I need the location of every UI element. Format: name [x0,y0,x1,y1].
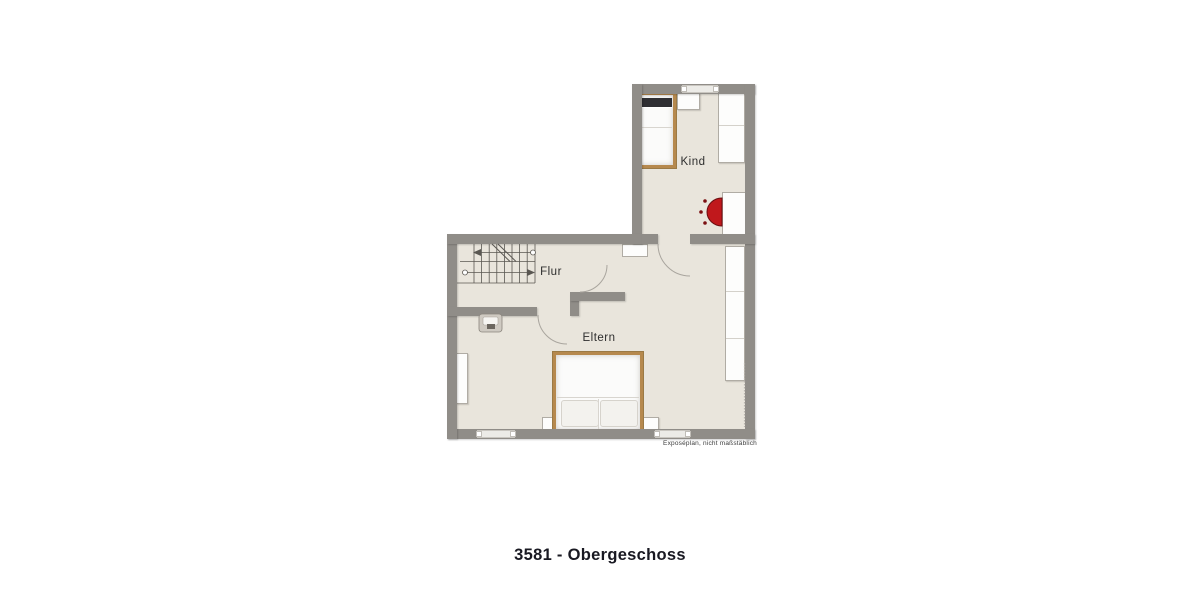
closet-divider [726,338,744,339]
wall-step-horizontal [570,292,625,301]
bed-duvet-line [557,397,639,398]
room-label-eltern: Eltern [564,332,634,344]
floor-door-opening [658,234,690,244]
bed-blanket-line [641,127,672,128]
disclaimer-text: Exposéplan, nicht maßstäblich [600,440,757,447]
wall-kind-bottom-left [642,234,658,244]
window-kind-top [682,85,718,93]
wardrobe-divider [719,125,744,126]
wall-niche [622,244,648,257]
bed-center-line [598,399,599,429]
window-bottom-left [477,430,515,438]
double-bed [553,352,643,433]
plan-caption: 3581 - Obergeschoss [0,546,1200,565]
wall-flur-eltern-divider [447,307,537,316]
closet-divider [726,291,744,292]
wall-top-lower-wing [447,234,642,244]
wall-kind-bottom-right [690,234,755,244]
built-in-closet-eltern [725,246,745,381]
wall-left-kind [632,84,642,244]
wardrobe-kind [718,89,745,163]
window-bottom-right [655,430,690,438]
bed-pillow-right [600,400,638,427]
wall-right-outer [745,84,755,439]
wall-left-outer [447,234,457,439]
bed-pillow-dark [641,98,672,108]
room-label-kind: Kind [663,156,723,168]
room-label-flur: Flur [521,266,581,278]
nightstand-kind [677,93,700,110]
floorplan-canvas: Kind Flur Eltern Exposéplan, nicht maßst… [0,0,1200,600]
bed-pillow-left [561,400,599,427]
cabinet-left-wall [456,353,468,404]
